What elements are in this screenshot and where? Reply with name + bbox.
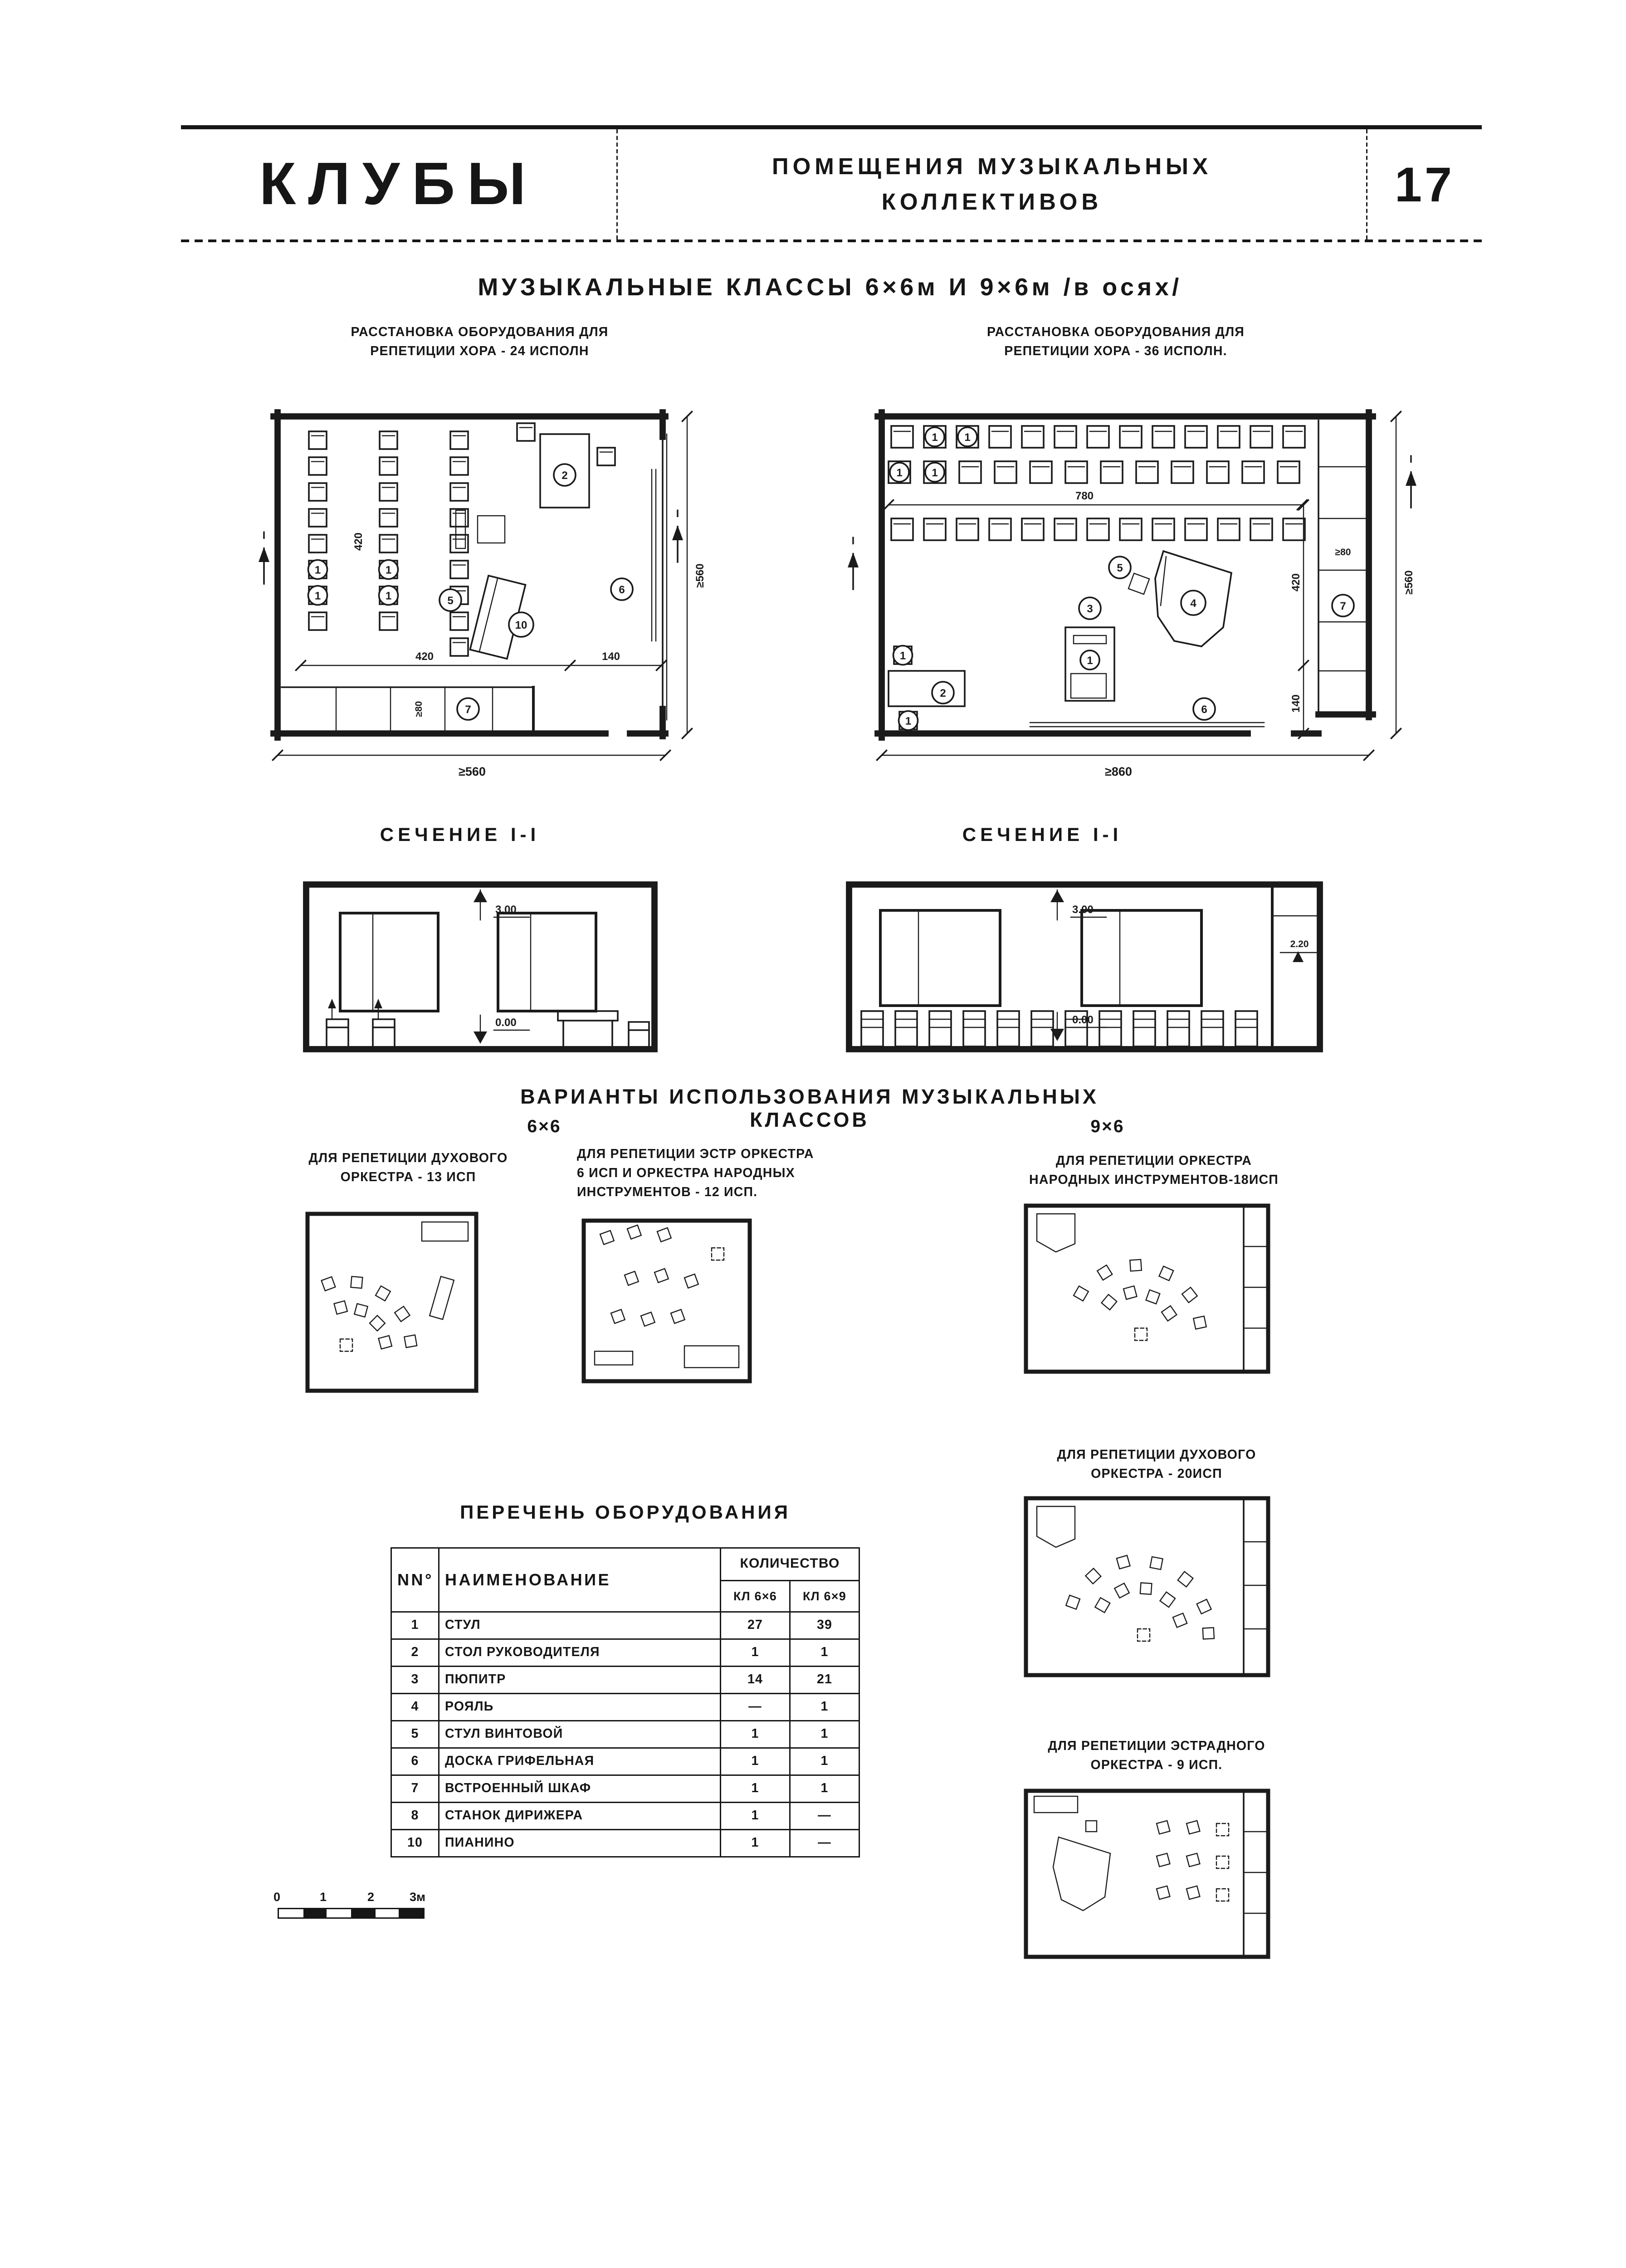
closet-strip: ≥80 7 [282,687,533,733]
svg-text:420: 420 [1290,573,1302,591]
col-header-name: НАИМЕНОВАНИЕ [439,1548,721,1612]
svg-text:420: 420 [415,650,434,663]
scanned-sheet: КЛУБЫ ПОМЕЩЕНИЯ МУЗЫКАЛЬНЫХ КОЛЛЕКТИВОВ … [0,0,1626,2268]
scale-tick-0: 0 [273,1890,280,1904]
svg-text:140: 140 [602,650,620,663]
plan-variant-brass-13 [302,1208,486,1399]
callout-3: 3 [1079,597,1101,619]
bottom-dim: ≥860 [877,751,1374,779]
svg-text:1: 1 [932,467,938,479]
scale-tick-1: 1 [320,1890,327,1904]
level-mark-closet: 2.20 [1280,939,1318,962]
header-number-cell: 17 [1367,129,1482,240]
svg-text:I: I [1410,453,1413,465]
svg-text:≥560: ≥560 [459,765,486,778]
scale-bar: 0 1 2 3м [275,1890,438,1928]
sheet-subject-line2: КОЛЛЕКТИВОВ [882,185,1102,220]
callout-5: 5 [439,589,461,611]
svg-text:1: 1 [896,467,902,479]
svg-text:1: 1 [386,564,391,577]
equipment-table-title: ПЕРЕЧЕНЬ ОБОРУДОВАНИЯ [391,1501,860,1523]
choir-chair-rows [889,426,1305,540]
col-header-no: NN° [391,1548,439,1612]
col-header-quantity: КОЛИЧЕСТВО [721,1548,859,1580]
plan-variant-folk-18 [1021,1200,1293,1380]
header-series-cell: КЛУБЫ [181,129,616,240]
caption-brass-20: ДЛЯ РЕПЕТИЦИИ ДУХОВОГО ОРКЕСТРА - 20ИСП [1007,1447,1306,1484]
conductor-stand: 1 [1065,627,1114,701]
svg-text:1: 1 [900,650,906,662]
table-row: 5СТУЛ ВИНТОВОЙ11 [391,1721,859,1748]
header-subject-cell: ПОМЕЩЕНИЯ МУЗЫКАЛЬНЫХ КОЛЛЕКТИВОВ [616,129,1367,240]
level-mark-floor: 0.00 [1050,1012,1106,1041]
closet-elevation [1272,885,1320,1049]
svg-text:5: 5 [447,595,453,607]
chalkboard: 6 [1030,698,1264,727]
svg-text:4: 4 [1190,597,1196,610]
variants-title: ВАРИАНТЫ ИСПОЛЬЗОВАНИЯ МУЗЫКАЛЬНЫХ КЛАСС… [503,1086,1116,1132]
col-header-6x9: КЛ 6×9 [790,1580,859,1612]
grand-piano: 4 [1155,551,1231,646]
leader-desk: 2 [517,423,615,508]
section-6x6: 3.00 0.00 [297,875,664,1059]
svg-text:7: 7 [465,704,471,716]
svg-text:≥560: ≥560 [694,563,706,587]
table-row: 1СТУЛ2739 [391,1612,859,1639]
svg-text:1: 1 [315,590,321,602]
scale-tick-3: 3м [410,1890,425,1904]
svg-text:2.20: 2.20 [1290,939,1309,949]
svg-text:0.00: 0.00 [495,1017,517,1029]
svg-text:780: 780 [1075,490,1094,502]
table-row: 4РОЯЛЬ—1 [391,1694,859,1721]
window [880,910,1201,1006]
plan-variant-brass-20 [1021,1493,1293,1683]
col-header-6x6: КЛ 6×6 [721,1580,790,1612]
plan-9x6-choir-36: ≥80 7 1 1 1 1 780 4 [840,399,1419,807]
inner-dim-line: 420 140 [296,650,666,670]
window [340,913,596,1011]
scale-tick-2: 2 [367,1890,374,1904]
svg-text:0.00: 0.00 [1072,1014,1094,1026]
table-row: 8СТАНОК ДИРИЖЕРА1— [391,1803,859,1830]
table-row: 10ПИАНИНО1— [391,1830,859,1857]
svg-text:2: 2 [562,469,567,482]
choir-chair-rows [309,431,468,656]
closet-depth-label: ≥80 [1335,547,1351,557]
svg-text:3: 3 [1087,603,1093,615]
plan-right-caption: РАССТАНОВКА ОБОРУДОВАНИЯ ДЛЯ РЕПЕТИЦИИ Х… [918,324,1313,362]
svg-text:2: 2 [940,687,946,699]
closet-column: ≥80 7 [1318,412,1373,717]
svg-text:I: I [263,529,266,542]
level-mark-floor: 0.00 [474,1015,529,1044]
svg-text:10: 10 [515,619,527,631]
bottom-dim: ≥560 [273,751,670,779]
svg-text:≥560: ≥560 [1403,570,1415,594]
plan-6x6-choir-24: ≥80 7 1 1 1 1 420 2 [254,399,708,807]
svg-text:1: 1 [386,590,391,602]
svg-text:7: 7 [1340,600,1346,612]
svg-text:I: I [676,508,679,520]
plan-variant-variety-9 [1021,1785,1293,1965]
callout-7: 7 [1332,595,1354,616]
section-cut-mark-right: I [1406,453,1416,508]
album-page: КЛУБЫ ПОМЕЩЕНИЯ МУЗЫКАЛЬНЫХ КОЛЛЕКТИВОВ … [0,0,1626,2268]
sheet-header: КЛУБЫ ПОМЕЩЕНИЯ МУЗЫКАЛЬНЫХ КОЛЛЕКТИВОВ … [181,125,1482,242]
svg-text:≥860: ≥860 [1105,765,1132,778]
row-dim-780: 780 [884,490,1307,510]
svg-text:3.00: 3.00 [495,904,517,916]
variants-size-9x6: 9×6 [1067,1116,1148,1136]
piano-stool: 5 [1109,557,1149,594]
section-title-right: СЕЧЕНИЕ I-I [933,823,1151,845]
callout-1: 1 1 1 1 [308,560,398,605]
svg-text:6: 6 [1201,704,1207,716]
svg-text:140: 140 [1290,694,1302,713]
chair-zone-dim: 420 [352,533,365,551]
section-9x6: 3.00 0.00 2.20 [840,875,1361,1059]
section-cut-mark-left: I [848,535,859,589]
section-cut-mark-left: I [259,529,269,584]
caption-variety-9: ДЛЯ РЕПЕТИЦИИ ЭСТРАДНОГО ОРКЕСТРА - 9 ИС… [1007,1738,1306,1775]
page-title: МУЗЫКАЛЬНЫЕ КЛАССЫ 6×6м И 9×6м /в осях/ [381,274,1279,302]
section-title-left: СЕЧЕНИЕ I-I [351,823,569,845]
table-row: 2СТОЛ РУКОВОДИТЕЛЯ11 [391,1639,859,1667]
svg-text:1: 1 [964,431,970,444]
svg-text:5: 5 [1117,562,1123,574]
equipment-table: NN° НАИМЕНОВАНИЕ КОЛИЧЕСТВО КЛ 6×6 КЛ 6×… [391,1547,860,1857]
svg-text:6: 6 [619,584,625,596]
svg-text:1: 1 [315,564,321,577]
table-row: 6ДОСКА ГРИФЕЛЬНАЯ11 [391,1748,859,1775]
plan-left-caption: РАССТАНОВКА ОБОРУДОВАНИЯ ДЛЯ РЕПЕТИЦИИ Х… [279,324,680,362]
variants-size-6x6: 6×6 [503,1116,585,1136]
leader-desk: 1 2 1 [889,646,965,730]
series-title: КЛУБЫ [259,155,538,215]
table-row: 3ПЮПИТР1421 [391,1667,859,1694]
svg-text:1: 1 [932,431,938,444]
plan-variant-estrada-folk-12 [578,1215,759,1389]
callout-7: 7 [457,698,479,720]
chairs-elevation [327,999,395,1046]
upright-piano: 10 [470,576,533,659]
caption-folk-18: ДЛЯ РЕПЕТИЦИИ ОРКЕСТРА НАРОДНЫХ ИНСТРУМЕ… [997,1153,1310,1190]
section-cut-mark-right: I [672,508,683,562]
svg-text:1: 1 [1087,655,1093,667]
chalkboard: 6 [611,469,656,641]
level-mark-ceiling: 3.00 [474,890,529,920]
scale-bar-segments [278,1908,425,1919]
sheet-subject-line1: ПОМЕЩЕНИЯ МУЗЫКАЛЬНЫХ [772,150,1212,185]
sheet-number: 17 [1395,156,1455,213]
caption-brass-13: ДЛЯ РЕПЕТИЦИИ ДУХОВОГО ОРКЕСТРА - 13 ИСП [279,1150,537,1188]
svg-text:I: I [852,535,855,547]
caption-estrada-folk-12: ДЛЯ РЕПЕТИЦИИ ЭСТР ОРКЕСТРА 6 ИСП И ОРКЕ… [577,1146,869,1202]
svg-text:3.00: 3.00 [1072,904,1094,916]
closet-depth-label: ≥80 [414,701,424,717]
table-elevation [558,1011,649,1046]
svg-text:1: 1 [905,715,911,728]
right-dim: ≥560 [683,412,707,738]
table-row: 7ВСТРОЕННЫЙ ШКАФ11 [391,1775,859,1803]
level-mark-ceiling: 3.00 [1050,890,1106,920]
